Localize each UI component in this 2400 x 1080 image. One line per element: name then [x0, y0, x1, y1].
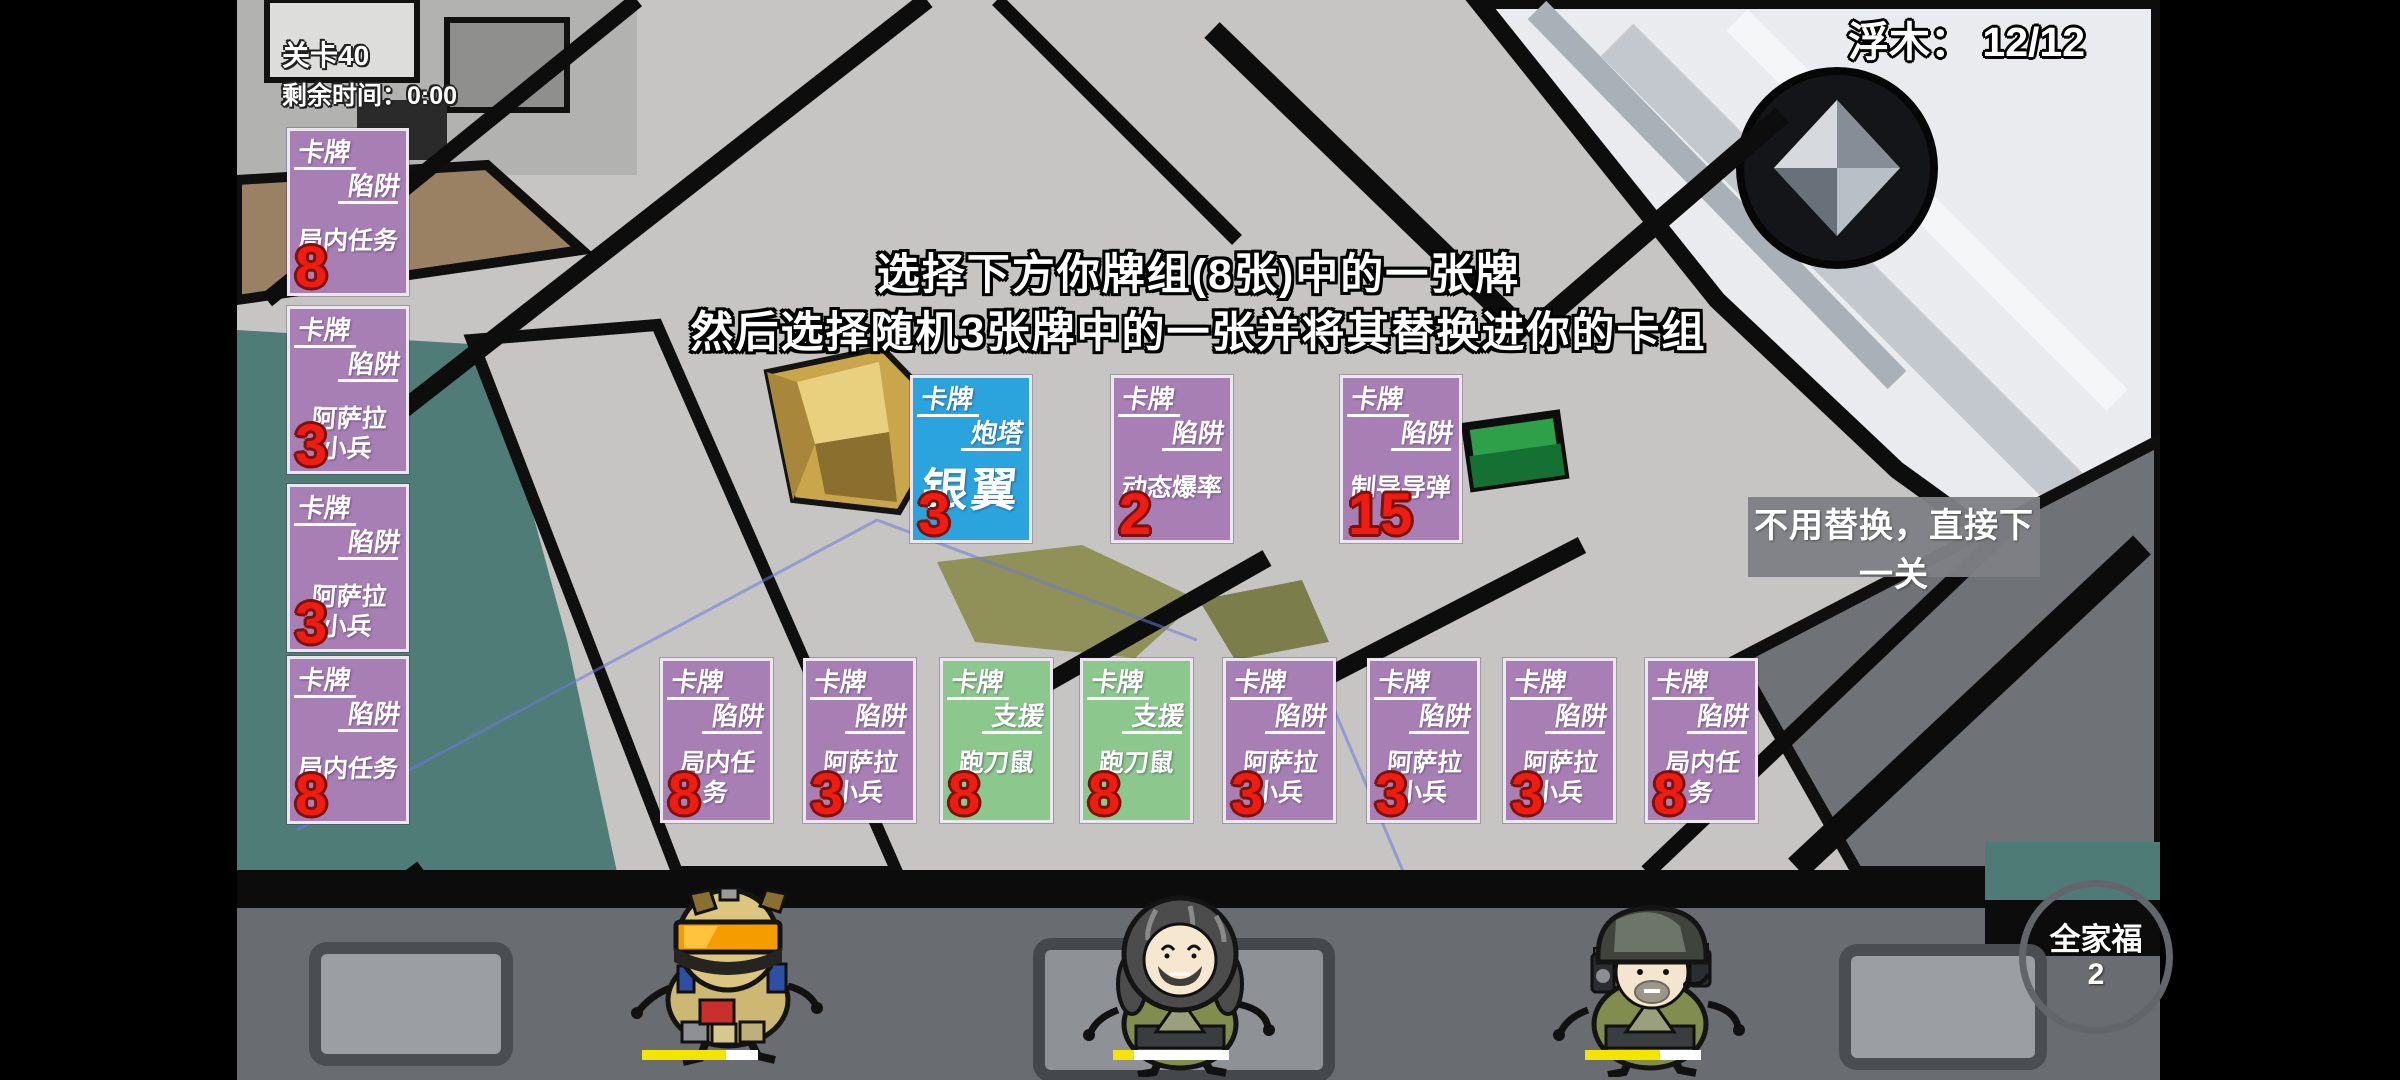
card-cost: 8: [1088, 766, 1120, 824]
level-label: 关卡40: [282, 34, 369, 74]
family-photo-button[interactable]: 全家福 2: [2019, 880, 2173, 1034]
health-bar: [1585, 1050, 1701, 1060]
card-type-label: 陷阱: [1409, 703, 1473, 734]
deck-card-3[interactable]: 卡牌 支援 跑刀鼠 8: [940, 658, 1053, 823]
choice-card-3[interactable]: 卡牌 陷阱 制导导弹 15: [1340, 375, 1462, 543]
card-kind-label: 卡牌: [1230, 669, 1296, 700]
card-kind-label: 卡牌: [294, 495, 360, 526]
card-kind-label: 卡牌: [917, 386, 983, 417]
card-cost: 3: [295, 417, 327, 475]
health-bar-fill: [642, 1050, 726, 1060]
driftwood-counter: 浮木： 12/12: [1848, 8, 2085, 68]
family-photo-count: 2: [2088, 958, 2105, 993]
card-kind-label: 卡牌: [810, 669, 876, 700]
card-type-label: 陷阱: [338, 529, 402, 560]
remaining-time-label: 剩余时间：0:00: [282, 76, 457, 112]
card-cost: 8: [668, 766, 700, 824]
card-cost: 8: [295, 767, 327, 825]
card-cost: 3: [1511, 766, 1543, 824]
card-cost: 3: [918, 486, 950, 544]
card-type-label: 陷阱: [1545, 703, 1609, 734]
card-type-label: 陷阱: [845, 703, 909, 734]
card-type-label: 支援: [982, 703, 1046, 734]
card-type-label: 陷阱: [1162, 420, 1226, 451]
card-type-label: 陷阱: [702, 703, 766, 734]
health-bar-fill: [1585, 1050, 1660, 1060]
skip-replace-button[interactable]: 不用替换，直接下一关: [1748, 497, 2040, 577]
deck-card-1[interactable]: 卡牌 陷阱 局内任务 8: [660, 658, 773, 823]
choice-card-1[interactable]: 卡牌 炮塔 银翼 3: [910, 375, 1032, 543]
family-photo-label: 全家福: [2050, 922, 2143, 958]
card-cost: 3: [811, 766, 843, 824]
card-type-label: 陷阱: [338, 701, 402, 732]
driftwood-label: 浮木：: [1848, 19, 1971, 65]
card-type-label: 炮塔: [961, 420, 1025, 451]
deck-card-5[interactable]: 卡牌 陷阱 阿萨拉小兵 3: [1223, 658, 1336, 823]
card-kind-label: 卡牌: [294, 667, 360, 698]
deck-card-6[interactable]: 卡牌 陷阱 阿萨拉小兵 3: [1367, 658, 1480, 823]
visor-soldier-character: [620, 888, 835, 1068]
card-cost: 8: [948, 766, 980, 824]
card-kind-label: 卡牌: [667, 669, 733, 700]
card-type-label: 陷阱: [338, 173, 402, 204]
left-card-3[interactable]: 卡牌 陷阱 阿萨拉小兵 3: [287, 484, 409, 652]
card-kind-label: 卡牌: [1374, 669, 1440, 700]
deck-card-4[interactable]: 卡牌 支援 跑刀鼠 8: [1080, 658, 1193, 823]
left-card-4[interactable]: 卡牌 陷阱 局内任务 8: [287, 656, 409, 824]
card-type-label: 陷阱: [1687, 703, 1751, 734]
card-type-label: 陷阱: [1391, 420, 1455, 451]
card-kind-label: 卡牌: [1510, 669, 1576, 700]
card-type-label: 陷阱: [338, 351, 402, 382]
card-type-label: 支援: [1122, 703, 1186, 734]
driftwood-value: 12/12: [1982, 19, 2085, 65]
card-cost: 3: [295, 595, 327, 653]
helmet-headset-soldier-character: [1540, 892, 1755, 1072]
card-kind-label: 卡牌: [1347, 386, 1413, 417]
deck-card-8[interactable]: 卡牌 陷阱 局内任务 8: [1645, 658, 1758, 823]
left-card-2[interactable]: 卡牌 陷阱 阿萨拉小兵 3: [287, 306, 409, 474]
deck-card-2[interactable]: 卡牌 陷阱 阿萨拉小兵 3: [803, 658, 916, 823]
card-kind-label: 卡牌: [1087, 669, 1153, 700]
card-cost: 2: [1119, 486, 1151, 544]
choice-card-2[interactable]: 卡牌 陷阱 动态爆率 2: [1111, 375, 1233, 543]
card-kind-label: 卡牌: [294, 317, 360, 348]
card-kind-label: 卡牌: [1118, 386, 1184, 417]
instruction-line-2: 然后选择随机3张牌中的一张并将其替换进你的卡组: [237, 298, 2160, 360]
game-screen: 关卡40 剩余时间：0:00 浮木： 12/12 选择下方你牌组(8张)中的一张…: [0, 0, 2400, 1080]
card-cost: 15: [1348, 486, 1413, 544]
game-area: 关卡40 剩余时间：0:00 浮木： 12/12 选择下方你牌组(8张)中的一张…: [237, 0, 2160, 1080]
card-cost: 8: [295, 239, 327, 297]
card-kind-label: 卡牌: [294, 139, 360, 170]
health-bar: [1113, 1050, 1229, 1060]
card-kind-label: 卡牌: [1652, 669, 1718, 700]
card-cost: 8: [1653, 766, 1685, 824]
long-hair-soldier-character: [1070, 892, 1285, 1072]
health-bar-fill: [1113, 1050, 1134, 1060]
card-kind-label: 卡牌: [947, 669, 1013, 700]
left-card-1[interactable]: 卡牌 陷阱 局内任务 8: [287, 128, 409, 296]
card-cost: 3: [1375, 766, 1407, 824]
card-type-label: 陷阱: [1265, 703, 1329, 734]
deck-card-7[interactable]: 卡牌 陷阱 阿萨拉小兵 3: [1503, 658, 1616, 823]
health-bar: [642, 1050, 758, 1060]
instruction-line-1: 选择下方你牌组(8张)中的一张牌: [237, 240, 2160, 302]
card-cost: 3: [1231, 766, 1263, 824]
